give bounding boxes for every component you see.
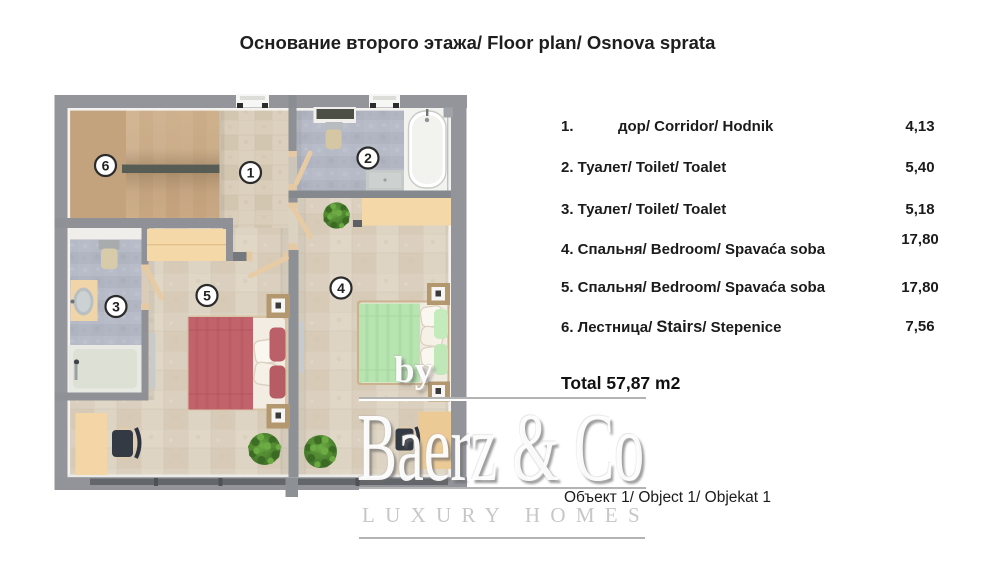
svg-text:2: 2 xyxy=(364,150,372,166)
svg-text:4: 4 xyxy=(337,280,345,296)
svg-text:3: 3 xyxy=(112,299,120,315)
svg-text:6: 6 xyxy=(102,158,110,174)
svg-text:1: 1 xyxy=(247,165,255,181)
svg-text:5: 5 xyxy=(203,288,211,304)
